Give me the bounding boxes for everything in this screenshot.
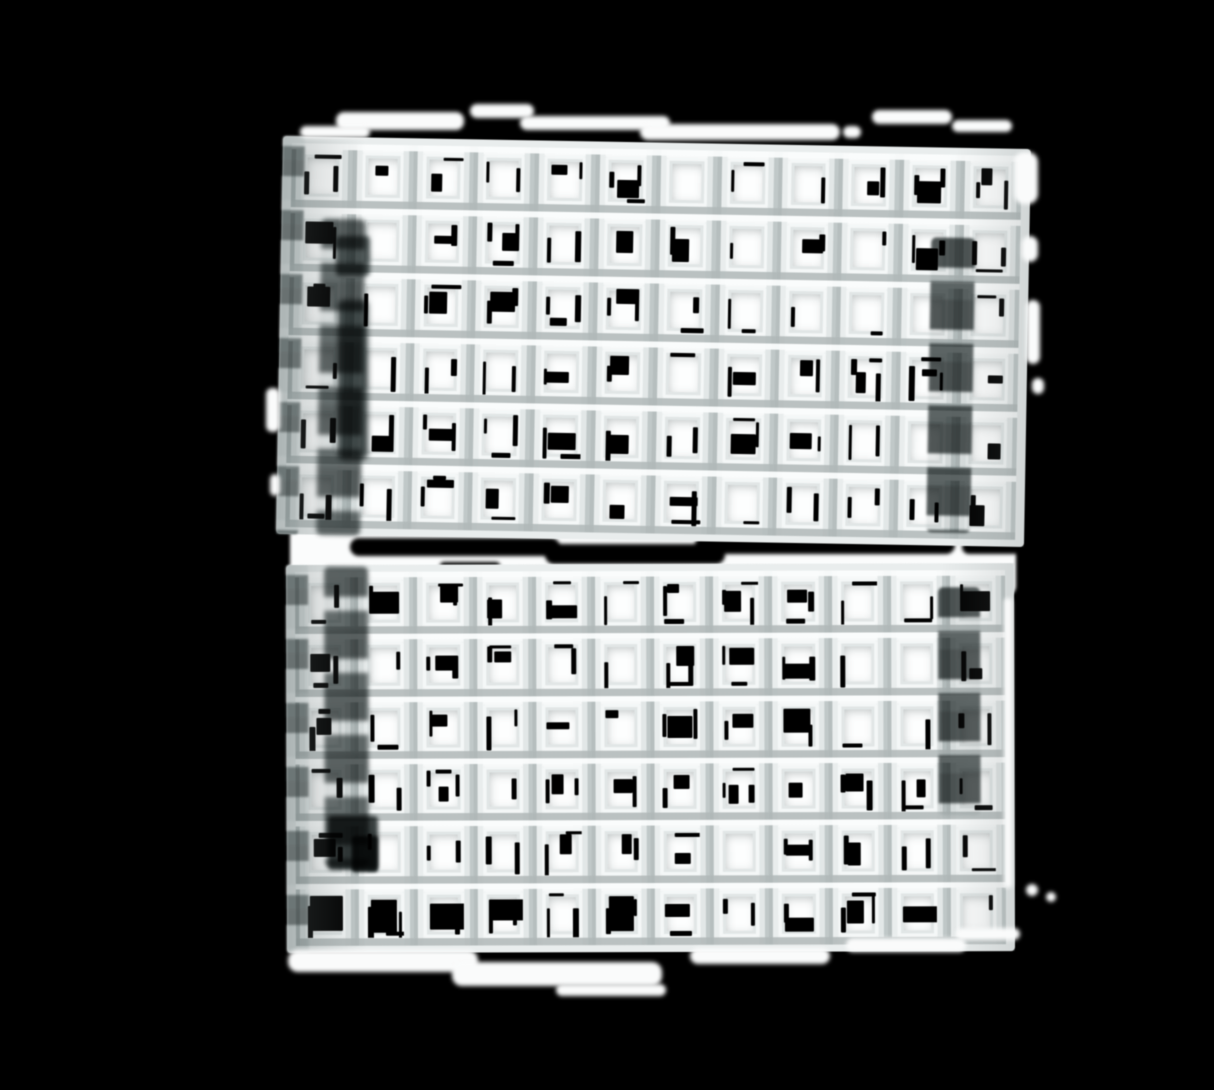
noise-patch [728, 785, 738, 804]
noise-dash-right [455, 840, 461, 862]
grid-cell [711, 471, 773, 536]
cell-opening [599, 477, 641, 526]
cell-opening [601, 704, 640, 750]
cell-opening [838, 765, 877, 811]
edge-blur-artifact [288, 950, 478, 972]
noise-dash-horizontal [433, 476, 446, 480]
grid-cell [592, 340, 654, 405]
cell-opening [424, 891, 463, 937]
grid-cell [532, 821, 591, 883]
noise-dash-right [456, 775, 460, 797]
grid-cell [769, 695, 828, 757]
grid-cell [774, 344, 836, 409]
noise-patch [846, 774, 864, 792]
noise-patch [489, 899, 523, 920]
noise-patch [673, 775, 690, 789]
cell-opening [602, 891, 641, 937]
noise-patch [547, 722, 570, 729]
grid-cell [532, 634, 591, 696]
grid-cell [651, 820, 710, 882]
noise-dash-right [818, 437, 821, 452]
cell-opening [661, 828, 700, 874]
noise-dash-left [841, 600, 845, 625]
noise-patch [848, 842, 862, 866]
edge-blur-artifact [1022, 236, 1038, 262]
cell-opening [897, 765, 936, 811]
noise-dash-right [386, 489, 392, 521]
noise-dash-left [486, 837, 492, 865]
noise-dash-left [728, 299, 732, 328]
cell-opening [424, 767, 463, 813]
noise-dash-right [391, 357, 397, 393]
noise-patch [731, 434, 756, 455]
cell-opening [660, 704, 699, 750]
cell-opening [897, 828, 936, 874]
edge-blur-artifact [843, 126, 861, 138]
grid-cell [834, 409, 896, 474]
noise-dash-right [693, 427, 698, 453]
cell-opening [417, 473, 459, 522]
noise-patch [432, 714, 447, 727]
cell-opening [482, 219, 524, 268]
noise-dash-right [989, 895, 993, 910]
grid-cell [410, 273, 472, 338]
cell-opening [544, 156, 586, 205]
noise-patch [783, 709, 810, 733]
noise-patch [375, 165, 389, 176]
grid-cell [777, 152, 839, 217]
grid-cell [713, 343, 775, 408]
noise-patch [609, 896, 634, 932]
noise-dash-left [487, 223, 493, 241]
noise-dash-left [607, 298, 611, 316]
noise-dash-right [634, 899, 637, 915]
noise-dash-horizontal [786, 619, 805, 624]
edge-blur-artifact [556, 984, 666, 996]
cell-opening [483, 642, 522, 688]
noise-patch [917, 181, 942, 204]
noise-dash-left [604, 596, 607, 625]
grid-cell [838, 153, 900, 218]
noise-dash-right [876, 425, 880, 456]
noise-dash-left [847, 497, 852, 518]
grid-cell [409, 337, 471, 402]
noise-dash-right [511, 779, 517, 800]
grid-cell [828, 570, 887, 632]
cell-opening [727, 159, 769, 208]
grid-cell [960, 155, 1022, 220]
cell-opening [779, 703, 818, 749]
grid-cell [769, 820, 828, 882]
cell-opening [666, 158, 708, 207]
noise-dash-right [333, 166, 338, 192]
noise-dash-left [304, 171, 309, 195]
noise-patch [672, 238, 689, 261]
cell-opening [661, 891, 700, 937]
noise-patch [441, 584, 458, 603]
edge-blur-artifact [1014, 152, 1038, 204]
cell-opening [970, 163, 1012, 212]
noise-dash-left [662, 714, 666, 737]
cell-opening [480, 346, 522, 395]
cell-opening [847, 225, 889, 274]
grid-cell [473, 696, 532, 758]
noise-patch [427, 479, 454, 488]
cell-opening [778, 579, 817, 625]
cell-opening [365, 767, 404, 813]
cell-opening [420, 281, 462, 330]
noise-dash-left [482, 361, 486, 395]
noise-dash-right [999, 298, 1005, 317]
cell-opening [838, 703, 877, 749]
noise-dash-right [880, 167, 885, 197]
cell-opening [785, 288, 827, 337]
noise-dash-right [874, 488, 880, 505]
edge-blur-artifact [1026, 300, 1040, 364]
noise-patch [669, 496, 697, 506]
noise-patch [551, 774, 564, 794]
noise-dash-right [573, 908, 579, 937]
grid-cell [651, 758, 710, 820]
noise-patch [371, 899, 396, 932]
cell-opening [957, 827, 996, 873]
cell-opening [782, 480, 824, 529]
noise-dash-left [786, 487, 791, 513]
cell-opening [543, 220, 585, 269]
noise-dash-left [848, 425, 852, 460]
noise-patch [550, 606, 577, 619]
noise-dash-right [821, 177, 825, 203]
noise-dash-left [542, 428, 547, 459]
noise-patch [430, 904, 464, 929]
cell-opening [601, 413, 643, 462]
noise-patch [551, 164, 567, 175]
grid-cell [473, 821, 532, 883]
cell-opening [848, 161, 890, 210]
noise-patch [787, 589, 807, 603]
grid-cell [414, 696, 473, 758]
noise-dash-horizontal [905, 619, 933, 623]
noise-patch [733, 372, 757, 385]
noise-dash-right [875, 373, 880, 401]
noise-dash-horizontal [554, 644, 573, 648]
noise-dash-right [750, 598, 755, 625]
noise-dash-horizontal [493, 261, 514, 266]
grid-cell [709, 695, 768, 757]
grid-cell [473, 883, 532, 945]
cell-opening [897, 703, 936, 749]
noise-dash-right [926, 719, 931, 749]
noise-dash-horizontal [435, 769, 452, 773]
noise-patch [614, 779, 633, 793]
grid-cell [887, 820, 946, 882]
noise-patch [435, 655, 459, 670]
grid-cell [473, 571, 532, 633]
noise-dash-horizontal [905, 806, 924, 809]
noise-dash-left [544, 845, 549, 875]
noise-dash-left [299, 493, 303, 520]
cell-opening [664, 286, 706, 335]
deep-shadow-patch [352, 836, 378, 872]
grid-cell [887, 882, 946, 944]
noise-dash-left [425, 367, 429, 394]
noise-dash-right [693, 709, 697, 738]
noise-dash-horizontal [438, 583, 463, 586]
cell-opening [662, 350, 704, 399]
grid-cell [469, 402, 531, 467]
noise-patch [559, 834, 571, 854]
noise-dash-horizontal [378, 745, 399, 750]
cell-opening [722, 415, 764, 464]
grid-cell [652, 341, 714, 406]
cell-opening [779, 766, 818, 812]
noise-dash-left [790, 307, 794, 327]
noise-dash-horizontal [671, 520, 700, 524]
grid-cell [414, 883, 473, 945]
cell-opening [424, 704, 463, 750]
noise-dash-horizontal [431, 285, 461, 289]
noise-dash-horizontal [732, 768, 754, 771]
noise-dash-horizontal [744, 162, 765, 167]
noise-dash-left [962, 835, 967, 857]
grid-cell [532, 571, 591, 633]
cell-opening [365, 891, 404, 937]
noise-dash-horizontal [444, 157, 464, 161]
grid-cell [534, 147, 596, 212]
noise-dash-left [487, 647, 492, 663]
grid-cell [473, 634, 532, 696]
grid-cell [712, 407, 774, 472]
noise-patch [789, 432, 811, 449]
edge-blur-artifact [1004, 598, 1012, 888]
noise-patch [802, 239, 823, 254]
noise-patch [988, 375, 1003, 383]
cell-opening [719, 641, 758, 687]
noise-dash-horizontal [674, 833, 699, 837]
grid-cell [775, 280, 837, 345]
grid-cell [532, 758, 591, 820]
cell-opening [483, 891, 522, 937]
noise-dash-right [749, 785, 755, 803]
noise-dash-horizontal [731, 681, 747, 685]
cell-opening [897, 578, 936, 624]
grid-cell [772, 472, 834, 537]
cell-opening [601, 766, 640, 812]
cell-opening [543, 891, 582, 937]
grid-cell [714, 279, 776, 344]
cell-opening [897, 641, 936, 687]
noise-dash-horizontal [491, 517, 516, 521]
cell-opening [362, 152, 404, 201]
noise-patch [547, 432, 576, 450]
cell-opening [784, 352, 826, 401]
cell-opening [845, 353, 887, 402]
noise-dash-right [396, 652, 401, 670]
noise-dash-right [575, 231, 581, 262]
noise-patch [903, 907, 937, 923]
noise-dash-left [546, 297, 550, 315]
cell-opening [483, 155, 525, 204]
noise-patch [867, 181, 879, 195]
noise-dash-horizontal [548, 893, 563, 897]
grid-cell [833, 473, 895, 538]
grid-cell [828, 820, 887, 882]
noise-patch [494, 652, 511, 663]
noise-dash-horizontal [971, 868, 995, 872]
noise-patch [428, 428, 452, 441]
edge-blur-artifact [1026, 884, 1038, 896]
grid-cell [414, 634, 473, 696]
grid-cell [470, 338, 532, 403]
noise-patch [785, 918, 813, 932]
noise-dash-horizontal [492, 453, 510, 458]
noise-dash-left [976, 183, 980, 199]
noise-dash-right [693, 297, 699, 313]
noise-patch [916, 779, 926, 797]
noise-dash-left [370, 715, 374, 742]
cell-opening [542, 829, 581, 875]
noise-dash-right [882, 232, 886, 246]
edge-blur-artifact [640, 124, 840, 140]
edge-blur-artifact [872, 110, 952, 124]
grid-cell [411, 209, 473, 274]
cell-opening [661, 766, 700, 812]
cell-opening [844, 417, 886, 466]
grid-cell [899, 154, 961, 219]
cell-opening [540, 412, 582, 461]
noise-dash-left [424, 296, 428, 314]
noise-patch [667, 716, 692, 739]
noise-dash-horizontal [664, 619, 683, 623]
noise-dash-left [663, 788, 668, 808]
cell-opening [843, 481, 885, 530]
cell-opening [838, 578, 877, 624]
noise-dash-right [872, 896, 876, 924]
noise-patch [789, 782, 803, 797]
grid-cell [532, 696, 591, 758]
cell-opening [665, 222, 707, 271]
grid-cell [473, 758, 532, 820]
cell-opening [786, 224, 828, 273]
noise-patch [486, 488, 499, 509]
cell-opening [539, 476, 581, 525]
noise-dash-left [730, 243, 733, 260]
deep-shadow-patch [338, 300, 368, 460]
noise-dash-left [902, 847, 907, 871]
cell-opening [604, 221, 646, 270]
noise-patch [546, 371, 568, 383]
noise-dash-right [575, 295, 581, 322]
noise-dash-right [815, 359, 820, 392]
grid-cell [710, 758, 769, 820]
noise-patch [981, 168, 992, 185]
grid-cell [594, 212, 656, 277]
cell-opening [719, 579, 758, 625]
noise-dash-left [666, 436, 672, 457]
cell-opening [846, 289, 888, 338]
noise-dash-right [867, 780, 873, 811]
grid-cell [655, 214, 717, 279]
noise-dash-horizontal [553, 581, 571, 584]
grid-cell [592, 883, 651, 945]
cell-opening [483, 766, 522, 812]
cell-opening [483, 579, 522, 625]
grid-cell [531, 339, 593, 404]
deep-shadow-patch [336, 236, 370, 276]
grid-cell [532, 275, 594, 340]
noise-dash-right [751, 903, 755, 926]
noise-dash-left [309, 726, 315, 750]
noise-dash-left [427, 846, 431, 861]
noise-dash-right [514, 709, 518, 726]
top-grid-panel [276, 136, 1031, 547]
noise-dash-left [604, 662, 608, 688]
cell-opening [661, 414, 703, 463]
grid-cell [651, 405, 713, 470]
grid-cell [650, 633, 709, 695]
grid-cell [773, 408, 835, 473]
grid-cell [355, 883, 414, 945]
cell-opening [602, 828, 641, 874]
cell-opening [478, 474, 520, 523]
noise-dash-left [486, 716, 491, 750]
gap-dark-streak [350, 538, 560, 556]
grid-cell [591, 571, 650, 633]
noise-patch [369, 592, 400, 614]
cell-opening [418, 409, 460, 458]
photo-canvas [0, 0, 1214, 1090]
noise-dash-right [930, 596, 933, 619]
noise-dash-right [808, 591, 813, 612]
cell-opening [723, 351, 765, 400]
noise-dash-left [547, 237, 551, 263]
noise-dash-horizontal [670, 353, 695, 357]
cell-opening [356, 472, 398, 521]
grid-cell [656, 150, 718, 215]
noise-dash-left [426, 656, 430, 670]
grid-cell [589, 468, 651, 533]
cell-opening [660, 579, 699, 625]
noise-dash-left [841, 908, 846, 933]
noise-dash-right [451, 359, 457, 376]
noise-patch [847, 900, 864, 923]
noise-dash-right [579, 163, 583, 180]
noise-patch [434, 236, 454, 244]
cell-opening [364, 642, 403, 688]
noise-dash-horizontal [666, 682, 690, 686]
noise-patch [609, 435, 629, 454]
noise-dash-left [545, 779, 550, 803]
cell-opening [423, 580, 462, 626]
edge-blur-artifact [452, 962, 662, 986]
cell-opening [838, 828, 877, 874]
noise-dash-horizontal [623, 581, 638, 584]
grid-cell [472, 210, 534, 275]
cell-opening [605, 157, 647, 206]
noise-dash-horizontal [842, 743, 862, 747]
noise-dash-left [547, 909, 551, 938]
grid-cell [590, 404, 652, 469]
noise-patch [856, 372, 866, 393]
grid-cell [408, 401, 470, 466]
grid-cell [946, 819, 1005, 881]
bottom-right-shadow-channel [938, 587, 981, 815]
noise-patch [783, 663, 812, 679]
cell-opening [479, 410, 521, 459]
noise-dash-left [609, 172, 614, 187]
grid-cell [828, 757, 887, 819]
grid-cell [769, 758, 828, 820]
